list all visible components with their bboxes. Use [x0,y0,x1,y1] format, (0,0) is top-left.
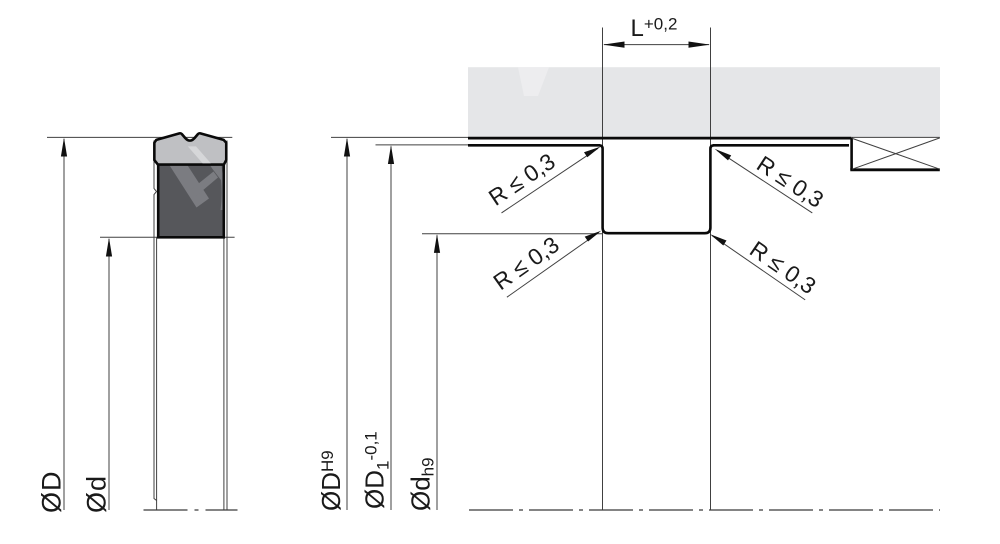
svg-text:ØD: ØD [37,471,67,514]
svg-text:Ød: Ød [82,475,112,513]
